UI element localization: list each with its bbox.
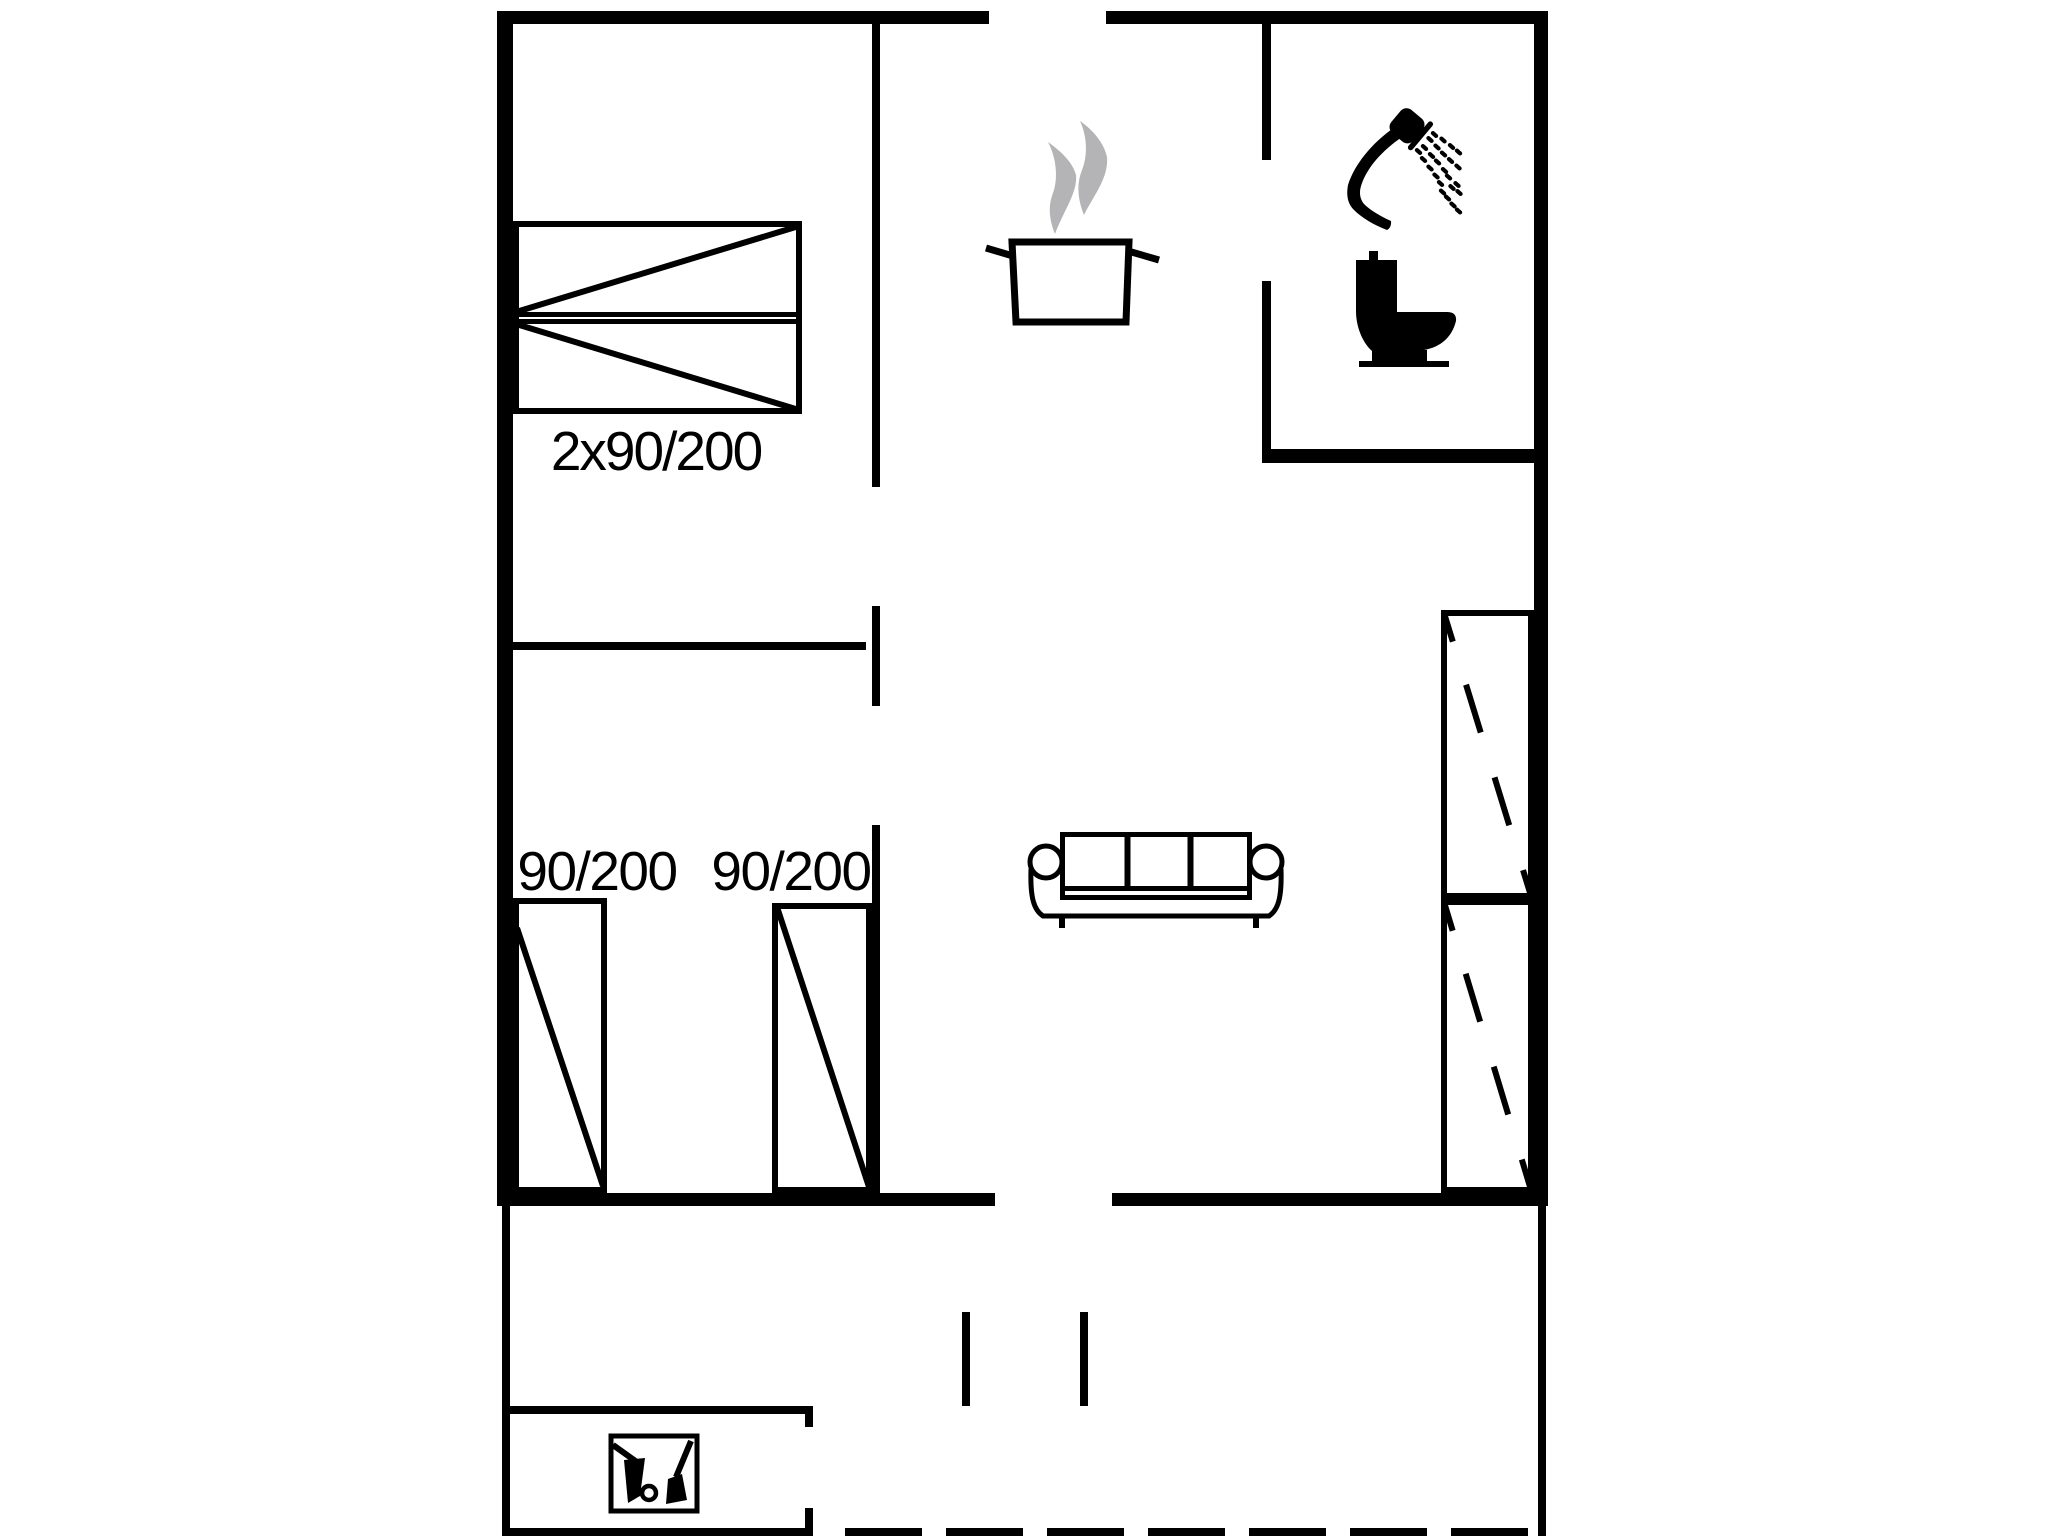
svg-text:2x90/200: 2x90/200 xyxy=(551,420,762,482)
svg-text:90/200: 90/200 xyxy=(517,840,676,902)
svg-text:90/200: 90/200 xyxy=(711,840,870,902)
